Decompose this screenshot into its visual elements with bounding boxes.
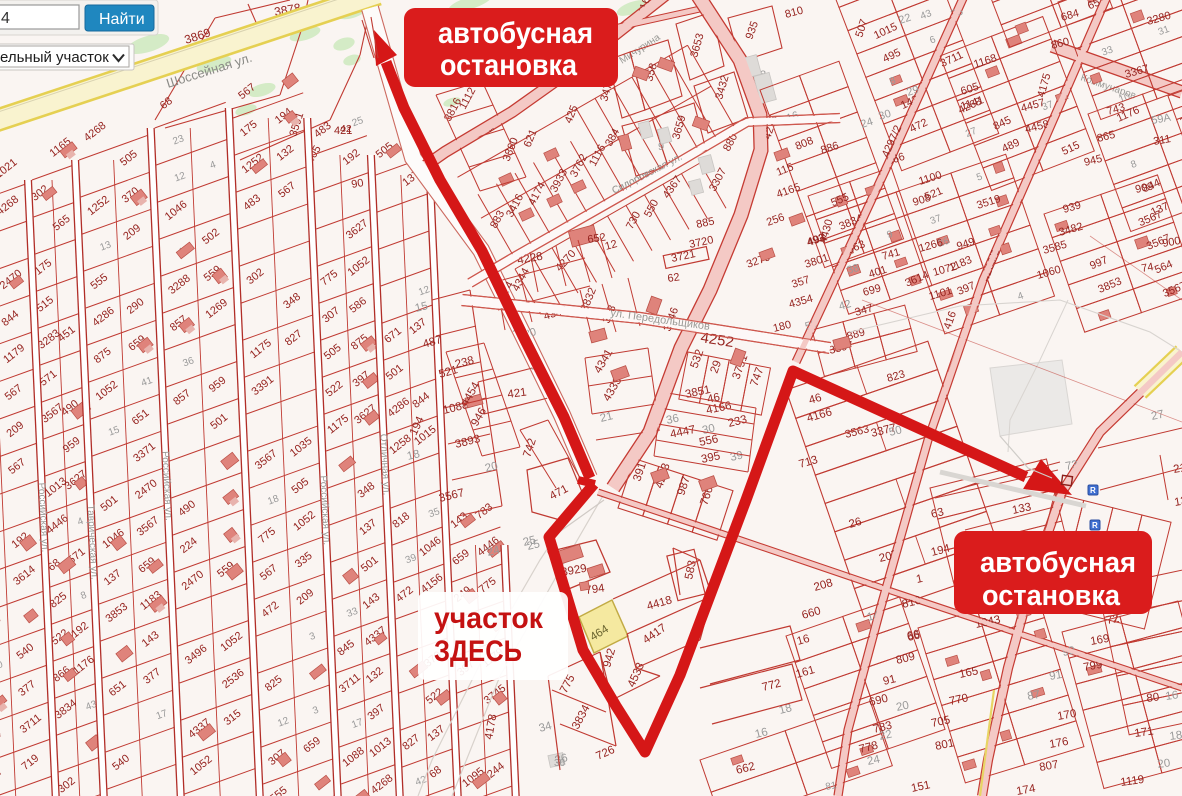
svg-text:90: 90 xyxy=(350,177,364,191)
svg-text:4: 4 xyxy=(1,10,10,27)
svg-text:18: 18 xyxy=(1169,729,1182,743)
svg-text:91: 91 xyxy=(1048,669,1063,683)
svg-text:16: 16 xyxy=(1165,689,1179,703)
svg-text:62: 62 xyxy=(667,271,681,285)
svg-text:20: 20 xyxy=(1157,757,1171,771)
svg-text:Найти: Найти xyxy=(99,11,145,28)
svg-text:R: R xyxy=(1090,486,1096,495)
svg-text:автобусная: автобусная xyxy=(438,17,593,50)
svg-text:80: 80 xyxy=(1146,691,1160,705)
svg-text:174: 174 xyxy=(1015,783,1037,796)
svg-text:остановка: остановка xyxy=(440,49,577,82)
svg-text:автобусная: автобусная xyxy=(980,547,1136,579)
svg-text:ельный участок: ельный участок xyxy=(0,49,109,66)
svg-text:ЗДЕСЬ: ЗДЕСЬ xyxy=(434,635,522,668)
svg-text:участок: участок xyxy=(434,602,544,635)
svg-text:87: 87 xyxy=(1026,689,1041,703)
svg-text:42: 42 xyxy=(340,123,352,135)
svg-text:R: R xyxy=(1092,521,1098,530)
svg-text:остановка: остановка xyxy=(982,580,1121,612)
svg-text:134: 134 xyxy=(1173,494,1182,509)
